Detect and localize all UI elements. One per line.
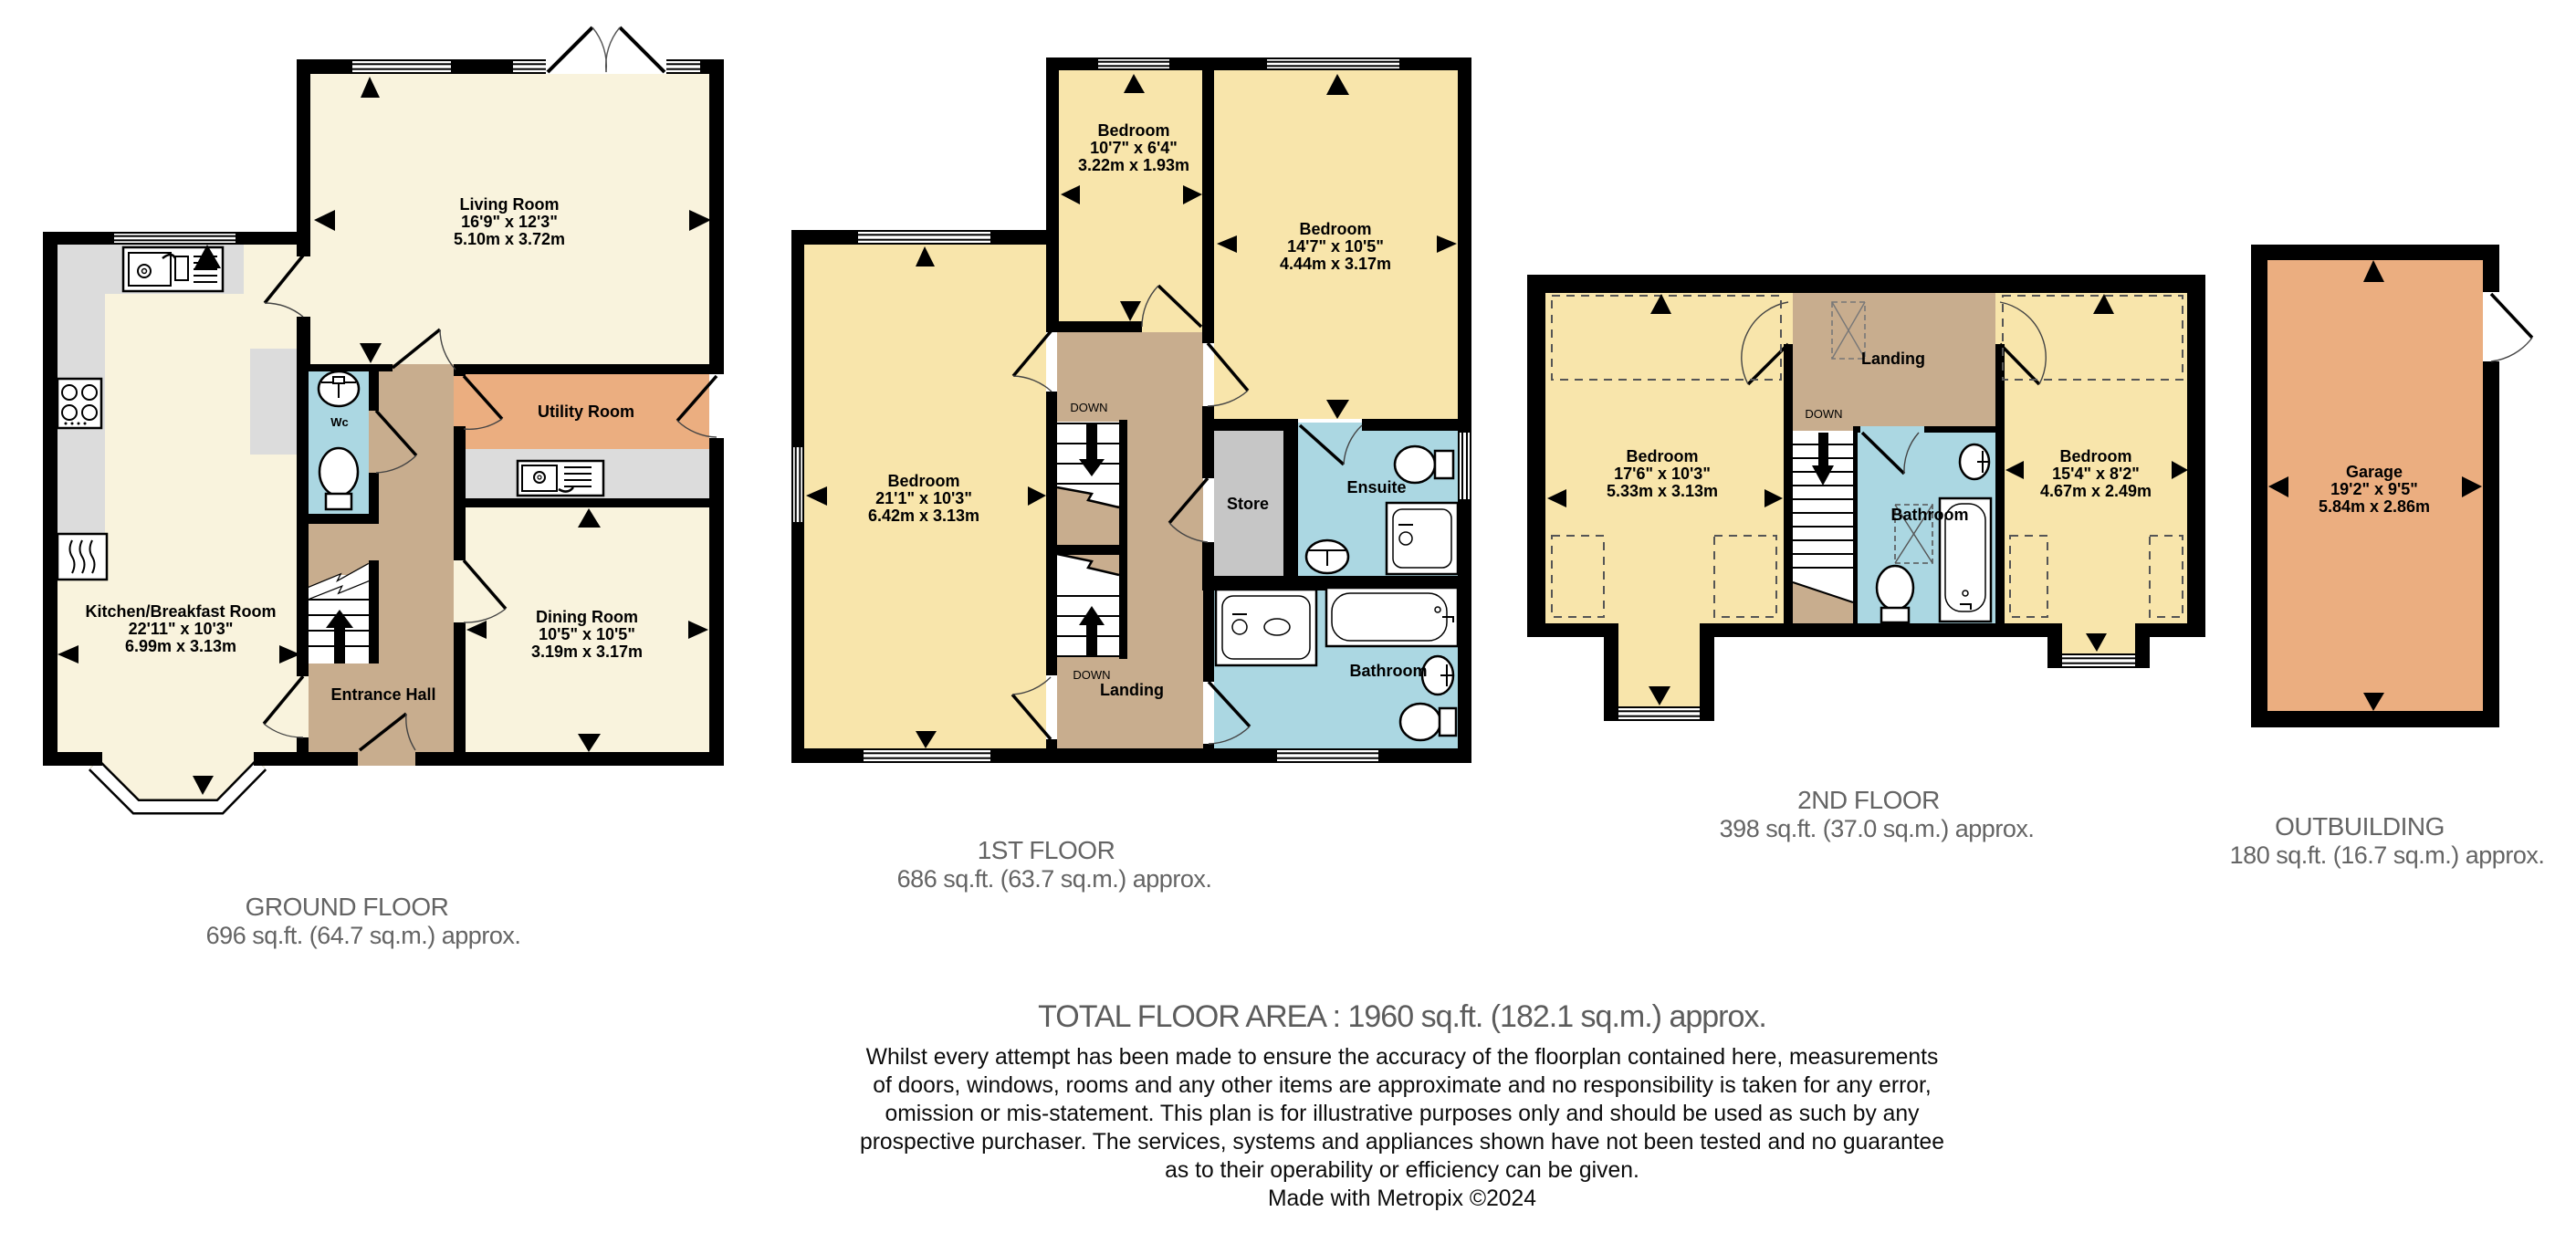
- svg-text:Entrance Hall: Entrance Hall: [330, 685, 435, 704]
- svg-text:TOTAL FLOOR AREA : 1960 sq.ft.: TOTAL FLOOR AREA : 1960 sq.ft. (182.1 sq…: [1038, 999, 1766, 1034]
- svg-text:Dining Room10'5" x 10'5"3.19m: Dining Room10'5" x 10'5"3.19m x 3.17m: [531, 608, 643, 661]
- svg-text:696 sq.ft. (64.7 sq.m.) approx: 696 sq.ft. (64.7 sq.m.) approx.: [206, 922, 521, 949]
- svg-text:2ND FLOOR: 2ND FLOOR: [1797, 786, 1940, 814]
- svg-text:686 sq.ft. (63.7 sq.m.) approx: 686 sq.ft. (63.7 sq.m.) approx.: [897, 865, 1212, 893]
- svg-text:DOWN: DOWN: [1805, 407, 1842, 421]
- svg-text:Bathroom: Bathroom: [1350, 662, 1428, 680]
- svg-text:180 sq.ft. (16.7 sq.m.) approx: 180 sq.ft. (16.7 sq.m.) approx.: [2230, 841, 2545, 869]
- svg-text:Store: Store: [1227, 495, 1269, 513]
- svg-text:Living Room16'9" x 12'3"5.10m: Living Room16'9" x 12'3"5.10m x 3.72m: [454, 195, 565, 248]
- svg-text:Landing: Landing: [1861, 350, 1925, 368]
- svg-text:DOWN: DOWN: [1073, 668, 1110, 682]
- svg-text:GROUND FLOOR: GROUND FLOOR: [246, 893, 449, 921]
- svg-text:Bathroom: Bathroom: [1891, 506, 1969, 524]
- svg-text:398 sq.ft. (37.0 sq.m.) approx: 398 sq.ft. (37.0 sq.m.) approx.: [1720, 815, 2035, 842]
- svg-text:Ensuite: Ensuite: [1346, 478, 1406, 496]
- svg-text:1ST FLOOR: 1ST FLOOR: [978, 836, 1115, 864]
- svg-text:DOWN: DOWN: [1070, 401, 1107, 414]
- svg-text:OUTBUILDING: OUTBUILDING: [2275, 812, 2445, 841]
- svg-text:Wc: Wc: [330, 415, 349, 429]
- svg-text:Landing: Landing: [1100, 681, 1164, 699]
- svg-text:Utility Room: Utility Room: [538, 402, 634, 421]
